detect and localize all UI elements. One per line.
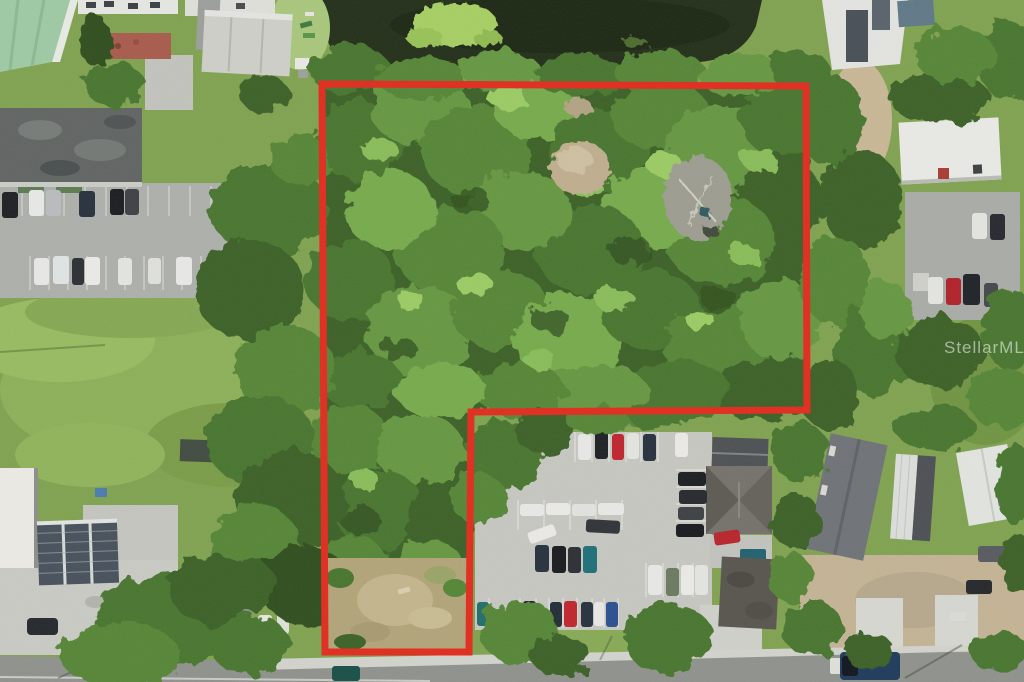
aerial-photo: StellarMLS [0, 0, 1024, 682]
photo-grain-overlay [0, 0, 1024, 682]
